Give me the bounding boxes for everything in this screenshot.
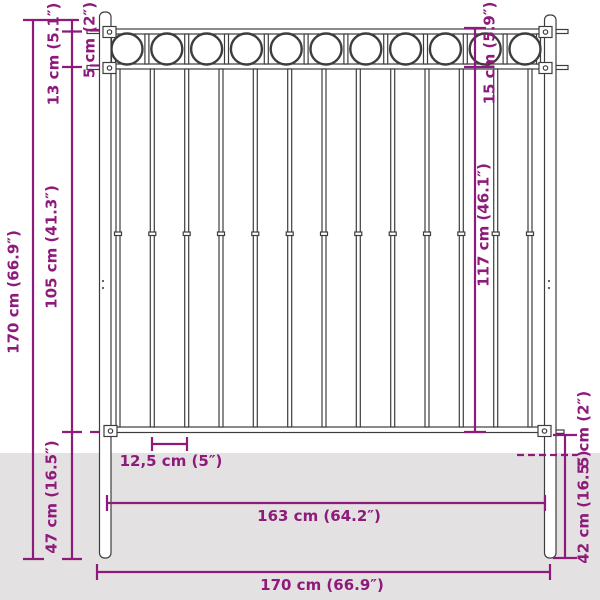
dim-line-bar-spacing bbox=[152, 437, 187, 451]
label-right-bar-height: 117 cm (46.1″) bbox=[475, 163, 493, 287]
label-bar-spacing: 12,5 cm (5″) bbox=[120, 452, 223, 470]
left-post bbox=[100, 12, 112, 558]
label-right-ring-section: 15 cm (5.9″) bbox=[481, 2, 499, 105]
fence-dimension-diagram: 170 cm (66.9″) 13 cm (5.1″) 5 cm (2″) 10… bbox=[0, 0, 600, 600]
diagram-canvas: 170 cm (66.9″) 13 cm (5.1″) 5 cm (2″) 10… bbox=[0, 0, 600, 600]
label-left-underground: 47 cm (16.5″) bbox=[43, 440, 61, 553]
bar-connectors bbox=[115, 232, 534, 236]
label-inner-width: 163 cm (64.2″) bbox=[257, 507, 381, 525]
label-left-bar-section: 105 cm (41.3″) bbox=[43, 185, 61, 309]
label-left-top-offset: 5 cm (2″) bbox=[81, 2, 99, 78]
ring-ornaments bbox=[112, 34, 541, 65]
vertical-bars bbox=[116, 69, 532, 427]
label-left-ring-section: 13 cm (5.1″) bbox=[45, 3, 63, 106]
label-left-total-height: 170 cm (66.9″) bbox=[5, 230, 23, 354]
right-post bbox=[545, 15, 557, 558]
label-total-width: 170 cm (66.9″) bbox=[260, 576, 384, 594]
label-right-underground: 42 cm (16.5″) bbox=[575, 450, 593, 563]
